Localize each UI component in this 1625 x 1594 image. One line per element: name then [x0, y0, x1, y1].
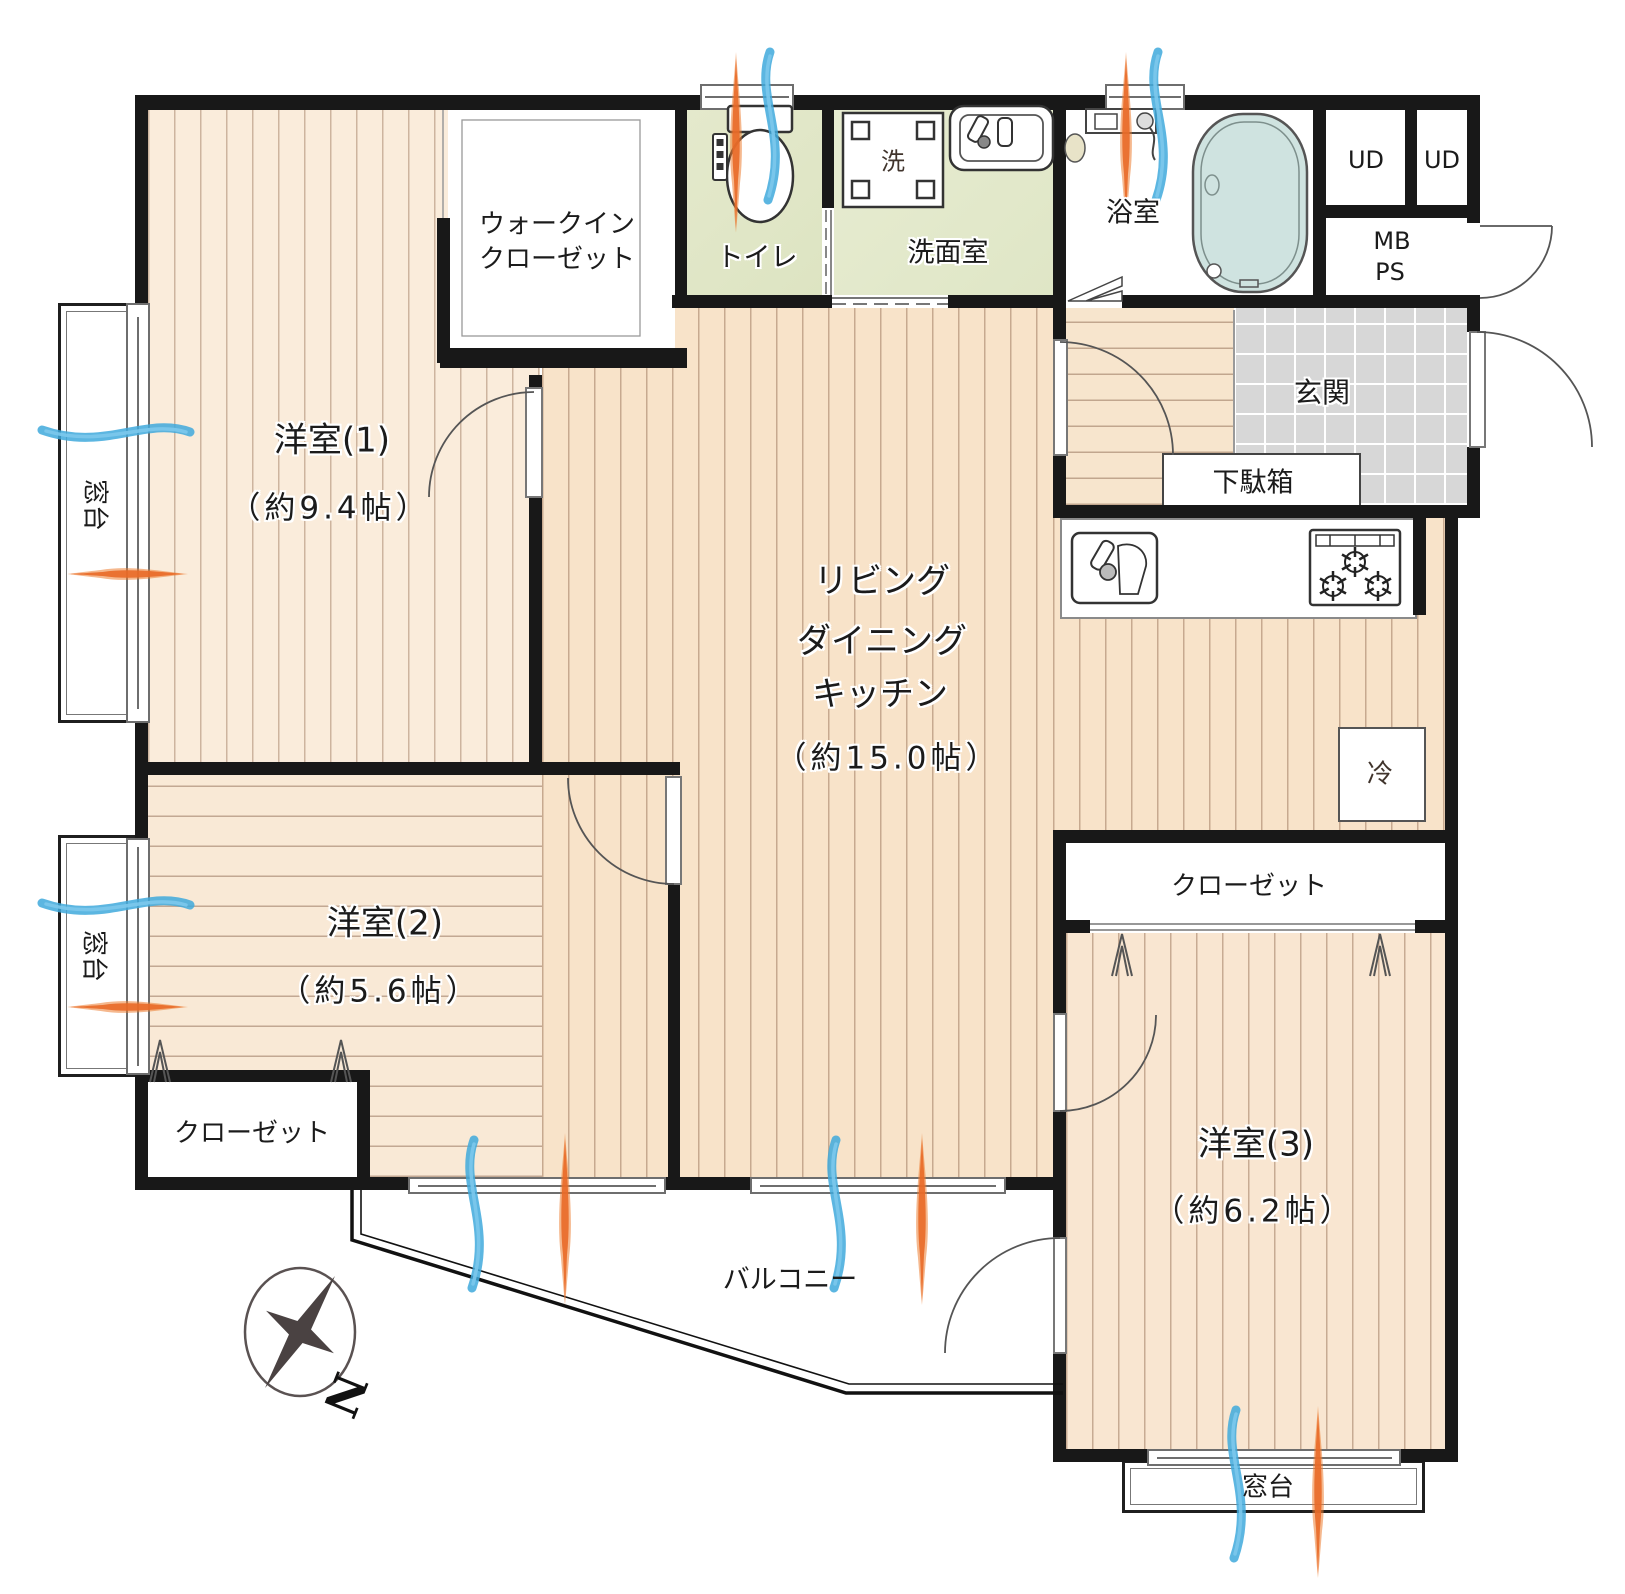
ud1-label: UD: [1348, 146, 1384, 174]
vent-flame-room2: [68, 1001, 188, 1013]
vent-flame-room1: [68, 568, 188, 580]
room3-closet-hanger-2: [1370, 934, 1390, 976]
washroom-sliding-door: [832, 298, 948, 304]
vent-wave-room2: [42, 901, 190, 911]
balcony-label: バルコニー: [723, 1258, 857, 1297]
genkan-label: 玄関: [1294, 371, 1350, 411]
toilet-sliding-door: [826, 210, 831, 295]
vent-wave-room1: [42, 428, 190, 438]
vent-wave-balcony-1: [470, 1140, 480, 1288]
closet-left-hanger-1: [150, 1040, 170, 1082]
door-arc-mbps: [1480, 226, 1552, 298]
bath-shower-unit: [1065, 109, 1156, 162]
floor-plan: N 洋室(1) （約9.4帖） 洋室(2) （約5.6帖） 洋室(3) （約6.…: [0, 0, 1625, 1594]
closet-right-label: クローゼット: [1171, 866, 1327, 903]
door-arc-room3-balcony: [945, 1238, 1060, 1353]
walkin-label-line1: ウォークイン: [479, 204, 635, 241]
gas-stove: [1310, 530, 1400, 605]
bath-folding-door: [1068, 277, 1122, 301]
washroom-label: 洗面室: [908, 231, 989, 270]
closet-left-hanger-2: [331, 1040, 351, 1082]
kitchen-sink: [1072, 533, 1157, 603]
closet-left-label: クローゼット: [174, 1113, 330, 1150]
ldk-label-line1: リビング: [814, 554, 950, 603]
bathtub: [1193, 114, 1307, 292]
room2-label: 洋室(2): [327, 896, 443, 945]
room2-size: （約5.6帖）: [279, 966, 480, 1011]
room3-size: （約6.2帖）: [1153, 1186, 1354, 1231]
compass: N: [231, 1255, 378, 1425]
vanity-sink: [950, 106, 1053, 170]
sill-left1-label: 窓台: [79, 479, 116, 531]
door-arc-hall: [1060, 342, 1173, 455]
sill-left2-label: 窓台: [78, 930, 115, 982]
washer-label: 洗: [881, 142, 905, 177]
ud2-label: UD: [1424, 146, 1460, 174]
bath-label: 浴室: [1106, 191, 1160, 230]
balcony-railing: [352, 1190, 1063, 1393]
ps-label: PS: [1375, 258, 1405, 286]
ldk-label-line2: ダイニング: [797, 614, 967, 663]
room1-label: 洋室(1): [274, 413, 390, 462]
vent-flame-balcony-1: [559, 1133, 571, 1305]
sill-bottom-label: 窓台: [1242, 1467, 1294, 1504]
toilet-label: トイレ: [717, 236, 798, 275]
toilet-fixture: [713, 106, 793, 222]
walkin-label-line2: クローゼット: [479, 239, 635, 276]
vent-wave-room3: [1232, 1410, 1242, 1558]
ldk-label-line3: キッチン: [812, 667, 948, 716]
closet-right-sliding-track: [1090, 924, 1415, 930]
door-arc-entrance: [1477, 332, 1592, 447]
vent-flame-balcony-2: [916, 1133, 928, 1305]
room3-closet-hanger-1: [1112, 934, 1132, 976]
door-arc-room3-entry: [1060, 1015, 1156, 1111]
room1-size: （約9.4帖）: [229, 483, 430, 528]
shoebox-label: 下駄箱: [1213, 461, 1294, 500]
ldk-size: （約15.0帖）: [775, 733, 1000, 778]
room3-label: 洋室(3): [1198, 1117, 1314, 1166]
fridge-label: 冷: [1367, 754, 1393, 791]
door-arc-room1: [429, 392, 534, 497]
mb-label: MB: [1373, 227, 1410, 255]
vent-flame-room3: [1312, 1406, 1324, 1578]
door-arc-room2: [568, 778, 674, 884]
